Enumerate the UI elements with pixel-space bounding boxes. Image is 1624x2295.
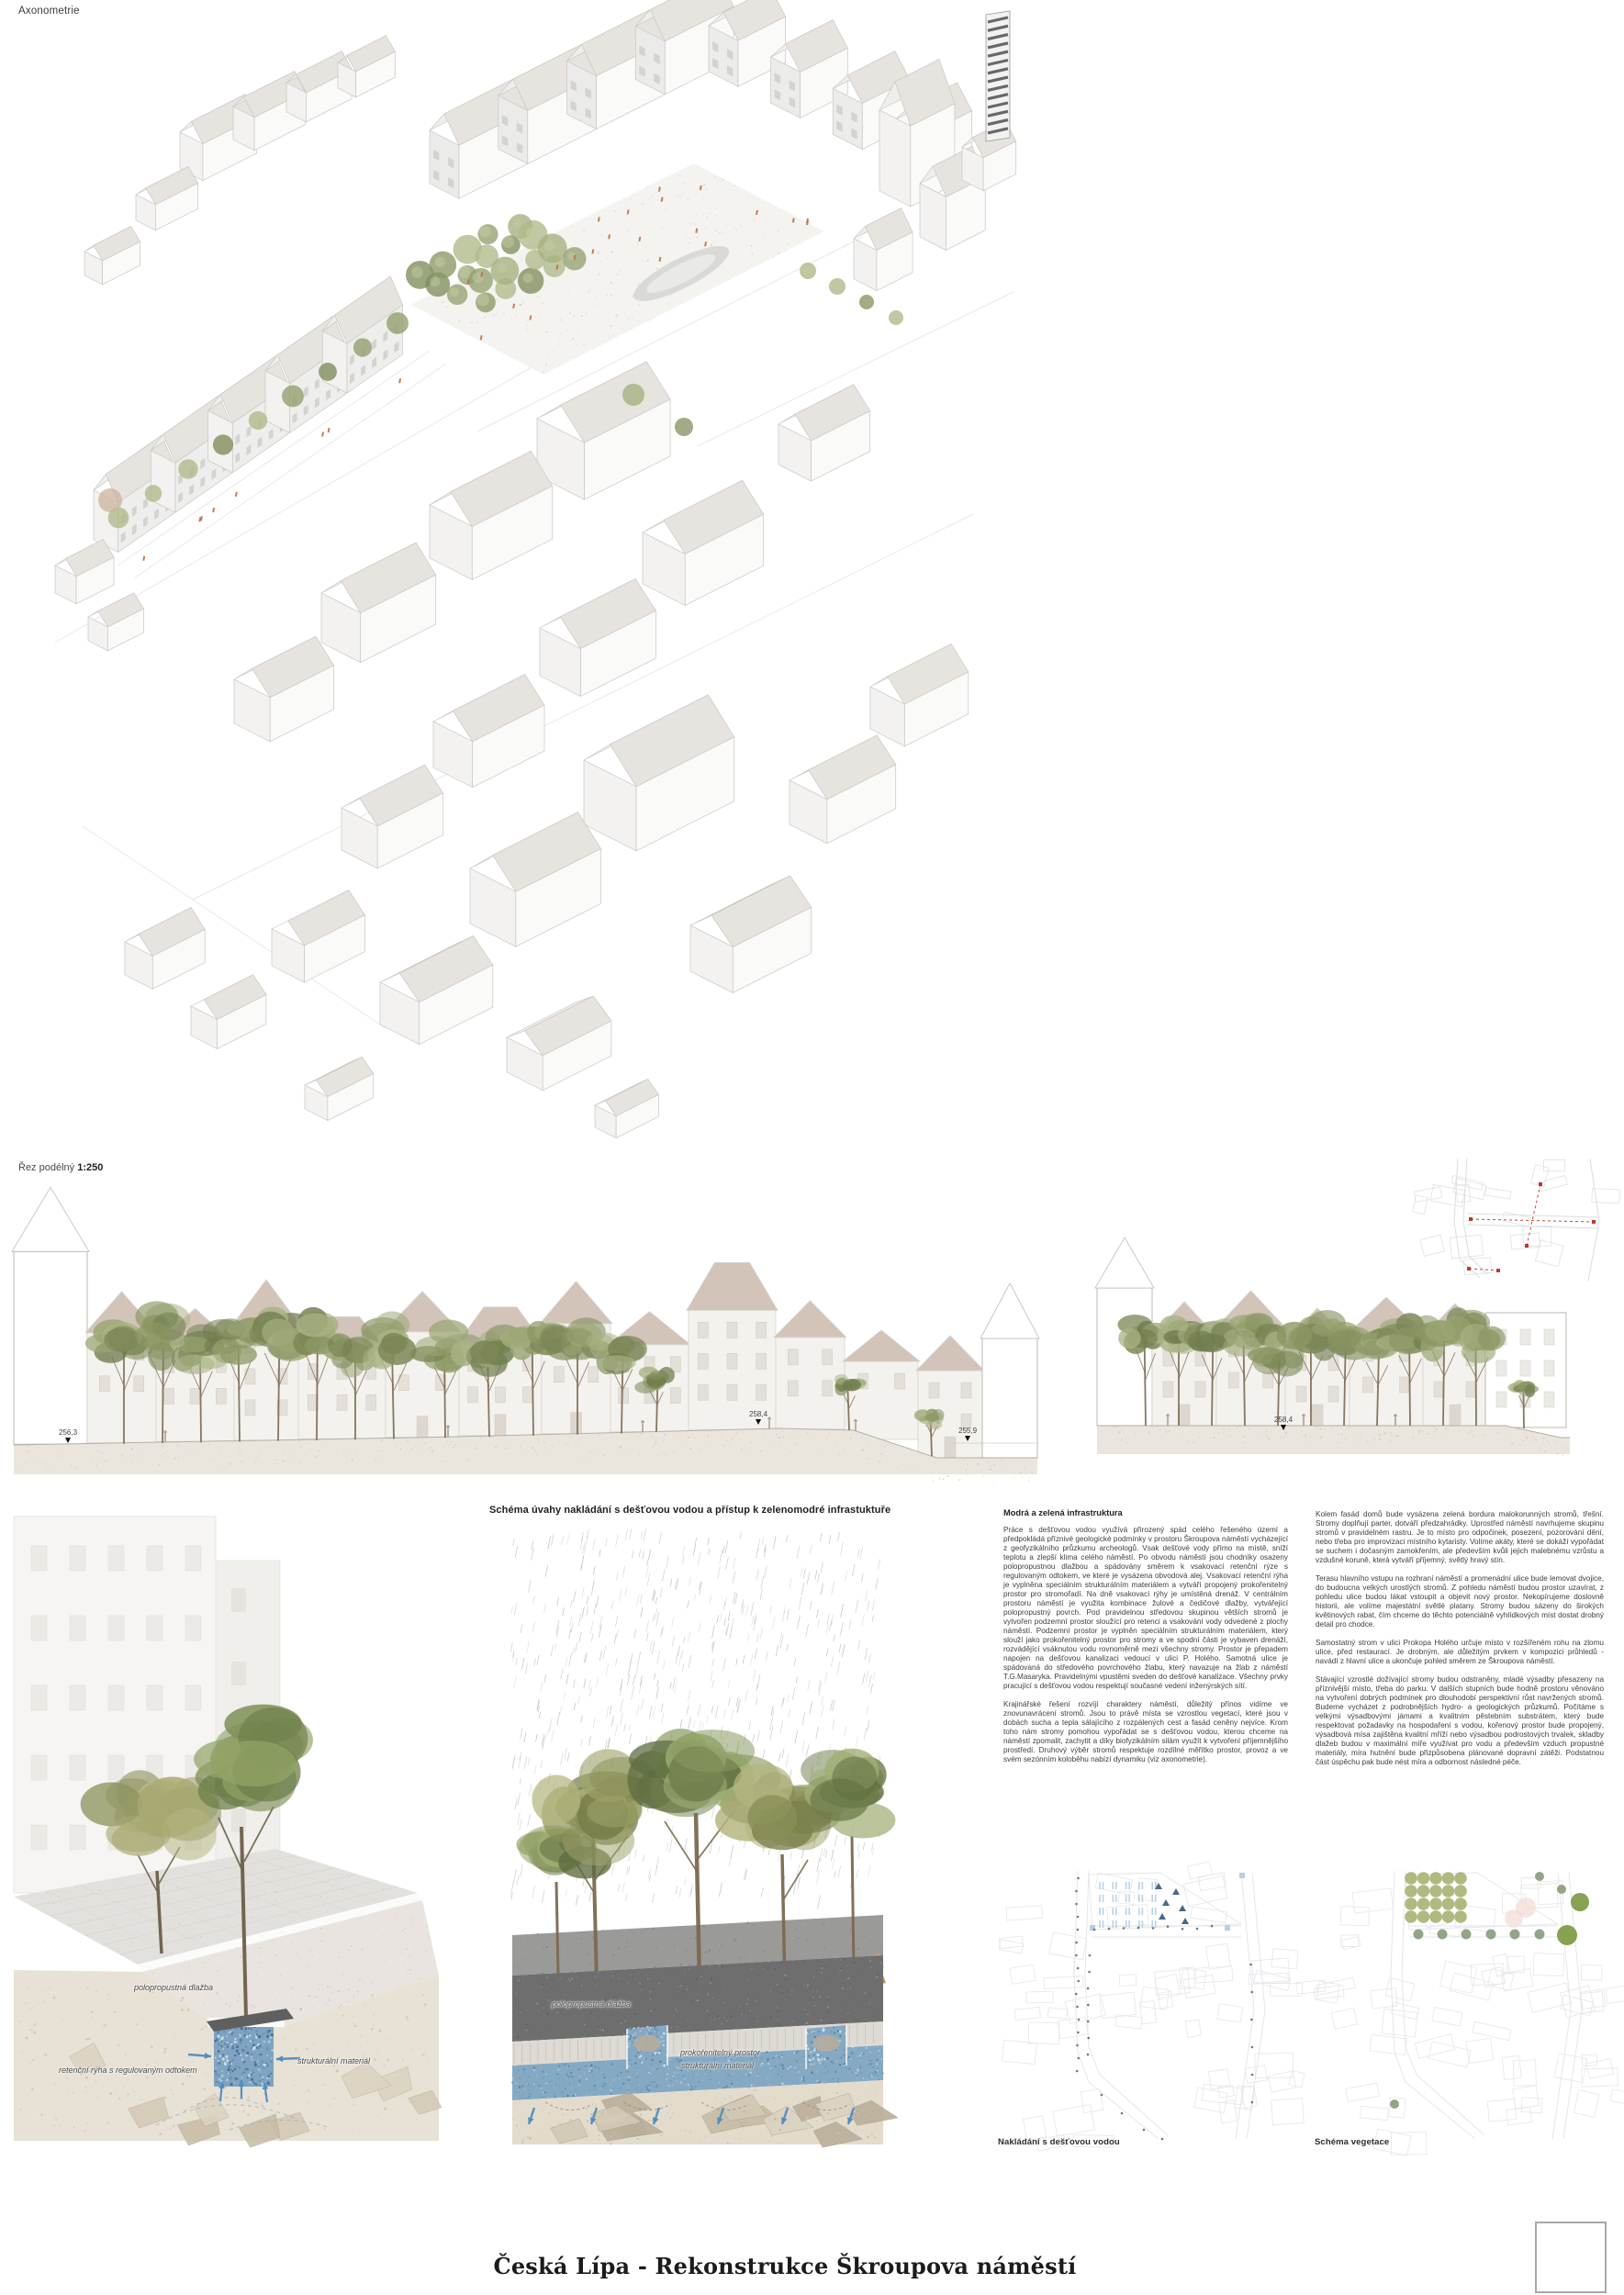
elevation-marker-icon — [65, 1438, 71, 1443]
paragraph: Terasu hlavního vstupu na rozhraní náměs… — [1316, 1574, 1604, 1629]
board-artwork — [0, 0, 1624, 2295]
render-annotation: prokořenitelný prostor — [680, 2048, 760, 2057]
render-annotation: polopropustná dlažba — [552, 1999, 631, 2009]
stamp-box — [1535, 2222, 1607, 2293]
section-label-text: Řez podélný — [18, 1162, 74, 1173]
presentation-board: Axonometrie Řez podélný 1:250 256,3 258,… — [0, 0, 1624, 2295]
elevation-marker-icon — [756, 1419, 761, 1425]
paragraph: Samostatný strom v ulici Prokopa Holého … — [1316, 1639, 1604, 1666]
vegetation-plan-diagram — [1314, 1871, 1624, 2155]
elevation-marker: 255,9 — [958, 1427, 977, 1441]
axonometric-drawing — [55, 0, 1016, 1138]
tree-pit-render — [14, 1517, 442, 2147]
axonometry-label: Axonometrie — [18, 6, 80, 17]
column-heading: Modrá a zelená infrastruktura — [1003, 1508, 1288, 1517]
elevation-marker: 256,3 — [59, 1428, 77, 1443]
text-column-right: Kolem fasád domů bude vysázena zelená bo… — [1316, 1510, 1604, 1776]
paragraph: Krajinářské řešení rozvíjí charaktery ná… — [1003, 1700, 1288, 1764]
board-title: Česká Lípa - Rekonstrukce Škroupova námě… — [0, 2253, 1570, 2279]
render-annotation: strukturální materiál — [297, 2056, 370, 2065]
elevation-marker-icon — [1281, 1425, 1286, 1430]
elevation-marker-icon — [965, 1436, 970, 1441]
paragraph: Stávající vzrostlé dožívající stromy bud… — [1316, 1675, 1604, 1767]
render-annotation: retenční rýha s regulovaným odtokem — [59, 2065, 197, 2075]
render-annotation: polopropustná dlažba — [134, 1983, 213, 1992]
diagram-caption: Nakládání s dešťovou vodou — [998, 2137, 1120, 2147]
section-scale-value: 1:250 — [77, 1162, 103, 1173]
schema-heading: Schéma úvahy nakládání s dešťovou vodou … — [489, 1505, 890, 1516]
paragraph: Kolem fasád domů bude vysázena zelená bo… — [1316, 1510, 1604, 1565]
elevation-marker: 258,4 — [1274, 1416, 1293, 1430]
paragraph: Práce s dešťovou vodou využívá přirozený… — [1003, 1526, 1288, 1691]
diagram-caption: Schéma vegetace — [1315, 2137, 1389, 2147]
section-scale-label: Řez podélný 1:250 — [18, 1162, 103, 1173]
long-section-drawing — [12, 1187, 1039, 1483]
rainwater-plan-diagram — [999, 1862, 1326, 2151]
site-plan-thumbnail — [1413, 1159, 1620, 1282]
render-annotation: strukturální materiál — [681, 2061, 754, 2070]
elevation-marker: 258,4 — [749, 1410, 767, 1425]
text-column-blue-green: Modrá a zelená infrastruktura Práce s de… — [1003, 1508, 1288, 1774]
